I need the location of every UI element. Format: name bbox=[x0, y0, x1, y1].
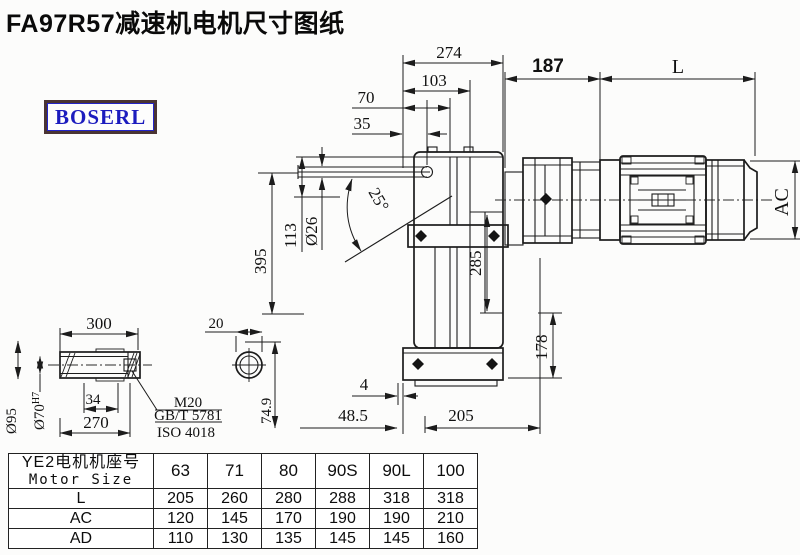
cell-AD-71: 130 bbox=[208, 529, 262, 549]
cell-AC-71: 145 bbox=[208, 509, 262, 529]
size-col-63: 63 bbox=[154, 454, 208, 489]
dim-395: 395 bbox=[251, 249, 270, 275]
dim-270: 270 bbox=[83, 413, 109, 432]
table-row-L: L 205 260 280 288 318 318 bbox=[9, 489, 478, 509]
size-col-90L: 90L bbox=[370, 454, 424, 489]
table-header-cell: YE2电机机座号 Motor Size bbox=[9, 454, 154, 489]
dim-o70h7: Ø70H7 bbox=[31, 392, 48, 430]
cell-AC-80: 170 bbox=[262, 509, 316, 529]
right-dimensions: 285 178 AC bbox=[466, 161, 800, 378]
dim-o26: Ø26 bbox=[302, 217, 321, 246]
dim-o95: Ø95 bbox=[4, 408, 20, 434]
cell-L-63: 205 bbox=[154, 489, 208, 509]
gearmotor-dimension-sheet: { "title": "FA97R57减速机电机尺寸图纸", "brand": … bbox=[0, 0, 800, 555]
dim-300: 300 bbox=[86, 314, 112, 333]
dim-70: 70 bbox=[358, 88, 375, 107]
table-header-row: YE2电机机座号 Motor Size 63 71 80 90S 90L 100 bbox=[9, 454, 478, 489]
cell-L-90S: 288 bbox=[316, 489, 370, 509]
dim-20: 20 bbox=[209, 316, 224, 332]
dim-25deg: 25° bbox=[365, 185, 393, 215]
cell-AD-90L: 145 bbox=[370, 529, 424, 549]
cell-AC-90L: 190 bbox=[370, 509, 424, 529]
table-row-AD: AD 110 130 135 145 145 160 bbox=[9, 529, 478, 549]
dim-178: 178 bbox=[532, 335, 551, 361]
row-label-L: L bbox=[9, 489, 154, 509]
hollow-shaft-detail: 300 34 270 Ø95 Ø70H7 M20 GB/T 5781 ISO 4… bbox=[4, 314, 222, 441]
row-label-AC: AC bbox=[9, 509, 154, 529]
dim-AC: AC bbox=[771, 188, 793, 216]
motor-size-header-en: Motor Size bbox=[9, 472, 153, 488]
cell-L-100: 318 bbox=[424, 489, 478, 509]
dim-35: 35 bbox=[354, 114, 371, 133]
dim-285: 285 bbox=[466, 251, 485, 277]
cell-AC-90S: 190 bbox=[316, 509, 370, 529]
size-col-100: 100 bbox=[424, 454, 478, 489]
motor-size-table: YE2电机机座号 Motor Size 63 71 80 90S 90L 100… bbox=[8, 453, 478, 549]
top-dimensions: 274 103 70 35 187 L bbox=[352, 43, 755, 168]
size-col-71: 71 bbox=[208, 454, 262, 489]
cell-AC-63: 120 bbox=[154, 509, 208, 529]
cell-AD-90S: 145 bbox=[316, 529, 370, 549]
label-iso4018: ISO 4018 bbox=[157, 425, 215, 441]
dim-34: 34 bbox=[86, 392, 102, 408]
size-col-80: 80 bbox=[262, 454, 316, 489]
dim-274: 274 bbox=[436, 43, 462, 62]
dim-103: 103 bbox=[421, 71, 447, 90]
cell-L-90L: 318 bbox=[370, 489, 424, 509]
housing-outline bbox=[414, 152, 503, 348]
dim-4: 4 bbox=[360, 375, 369, 394]
cell-AC-100: 210 bbox=[424, 509, 478, 529]
cell-L-71: 260 bbox=[208, 489, 262, 509]
dim-113: 113 bbox=[281, 223, 300, 248]
motor-assembly-view bbox=[495, 156, 772, 245]
row-label-AD: AD bbox=[9, 529, 154, 549]
dim-L: L bbox=[672, 56, 684, 78]
cell-AD-80: 135 bbox=[262, 529, 316, 549]
cell-AD-63: 110 bbox=[154, 529, 208, 549]
cell-L-80: 280 bbox=[262, 489, 316, 509]
dim-74_9: 74.9 bbox=[259, 398, 275, 424]
label-gbt5781: GB/T 5781 bbox=[154, 408, 222, 424]
size-col-90S: 90S bbox=[316, 454, 370, 489]
motor-size-header-cn: YE2电机机座号 bbox=[9, 454, 153, 472]
dim-48_5: 48.5 bbox=[338, 406, 368, 425]
table-row-AC: AC 120 145 170 190 190 210 bbox=[9, 509, 478, 529]
dim-187: 187 bbox=[532, 56, 564, 77]
dim-205: 205 bbox=[448, 406, 474, 425]
bottom-dimensions: 4 48.5 205 bbox=[300, 258, 540, 434]
cell-AD-100: 160 bbox=[424, 529, 478, 549]
